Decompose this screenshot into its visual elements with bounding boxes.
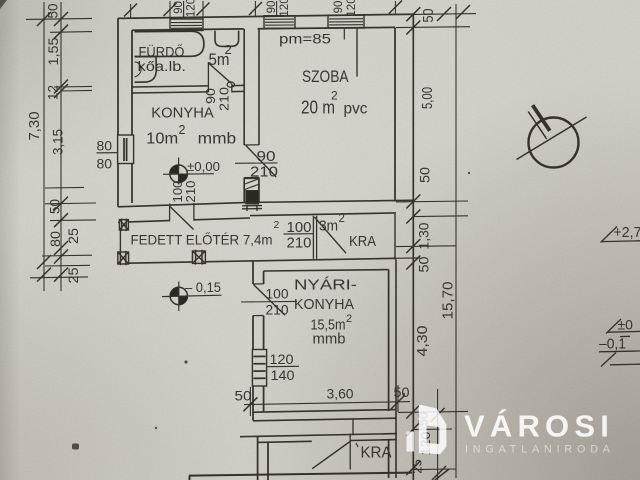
svg-text:pm=85: pm=85 (279, 31, 331, 47)
svg-text:210: 210 (266, 303, 289, 318)
svg-text:25: 25 (410, 459, 425, 474)
svg-text:210: 210 (287, 236, 312, 252)
svg-text:50: 50 (421, 9, 437, 23)
svg-text:120: 120 (270, 352, 294, 367)
svg-text:120: 120 (346, 0, 358, 17)
svg-text:10m: 10m (146, 131, 178, 148)
svg-text:2: 2 (331, 89, 338, 103)
svg-text:100: 100 (266, 287, 289, 302)
svg-text:50: 50 (417, 167, 433, 183)
svg-text:90: 90 (257, 148, 276, 165)
svg-text:2: 2 (274, 219, 280, 231)
svg-text:210: 210 (250, 164, 278, 181)
svg-text:+2,7: +2,7 (614, 224, 640, 241)
svg-text:50: 50 (47, 199, 63, 214)
svg-text:210: 210 (217, 87, 232, 111)
svg-text:5,00: 5,00 (419, 87, 436, 109)
svg-text:50: 50 (235, 388, 252, 404)
svg-text:80: 80 (97, 138, 113, 154)
svg-text:2: 2 (339, 213, 345, 225)
svg-text:15,70: 15,70 (441, 282, 457, 320)
svg-text:–0,1: –0,1 (599, 336, 626, 353)
svg-text:FEDETT ELŐTÉR 7,4m: FEDETT ELŐTÉR 7,4m (131, 233, 273, 248)
svg-text:±0,00: ±0,00 (187, 159, 220, 174)
svg-text:3,60: 3,60 (327, 386, 354, 402)
svg-text:2: 2 (179, 123, 186, 137)
svg-text:4,30: 4,30 (415, 326, 431, 357)
svg-text:210: 210 (183, 181, 198, 203)
svg-text:mmb: mmb (313, 331, 346, 348)
svg-text:mmb: mmb (198, 131, 237, 148)
svg-text:3m: 3m (319, 219, 338, 235)
svg-text:25: 25 (65, 267, 81, 283)
svg-text:2: 2 (225, 42, 232, 57)
svg-text:±0: ±0 (618, 317, 634, 333)
svg-text:pvc: pvc (344, 101, 368, 118)
svg-text:– 0,15: – 0,15 (185, 279, 221, 295)
svg-text:90: 90 (266, 1, 278, 14)
svg-text:KONYHA: KONYHA (151, 106, 214, 122)
svg-text:50: 50 (45, 3, 61, 18)
svg-text:NYÁRI-: NYÁRI- (294, 277, 357, 294)
svg-text:80: 80 (47, 231, 63, 247)
svg-text:120: 120 (186, 0, 198, 17)
svg-text:1,55: 1,55 (45, 37, 61, 65)
svg-text:50: 50 (416, 256, 432, 272)
svg-text:KRA: KRA (361, 445, 393, 462)
svg-text:90: 90 (333, 1, 345, 14)
svg-text:INGATLANIRODA: INGATLANIRODA (465, 444, 615, 456)
svg-text:80: 80 (97, 156, 113, 172)
svg-text:FÜRDŐ: FÜRDŐ (139, 43, 185, 60)
svg-text:25: 25 (65, 228, 81, 244)
svg-text:120: 120 (279, 0, 291, 17)
svg-text:VÁROSI: VÁROSI (464, 409, 614, 444)
svg-text:SZOBA: SZOBA (302, 67, 349, 86)
svg-text:90: 90 (173, 1, 185, 14)
svg-text:2: 2 (346, 313, 352, 325)
svg-text:kőa.lb.: kőa.lb. (138, 58, 187, 74)
svg-text:140: 140 (271, 368, 295, 383)
svg-text:KONYHA: KONYHA (294, 297, 354, 313)
svg-text:50: 50 (394, 384, 410, 400)
svg-text:KRA: KRA (349, 233, 376, 250)
svg-text:3,15: 3,15 (50, 129, 66, 155)
svg-text:1,30: 1,30 (416, 222, 432, 249)
svg-text:20 m: 20 m (301, 98, 335, 118)
svg-text:7,30: 7,30 (26, 112, 43, 141)
svg-text:12: 12 (46, 85, 61, 100)
